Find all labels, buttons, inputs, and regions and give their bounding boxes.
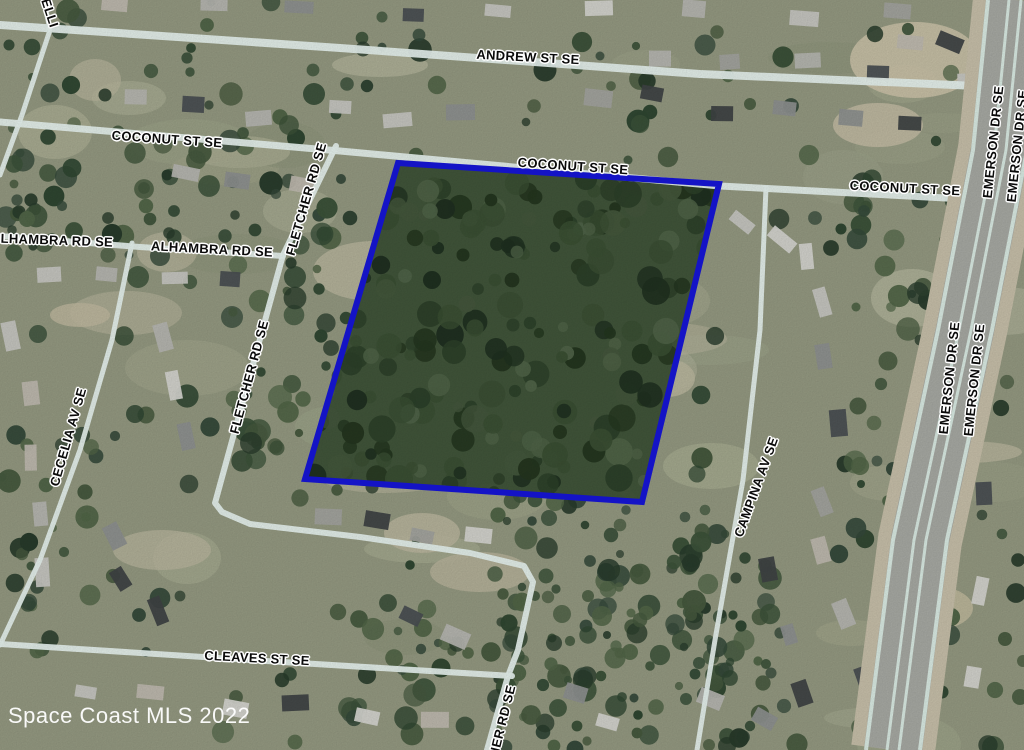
aerial-map: ANDREW ST SECOCONUT ST SECOCONUT ST SECO…: [0, 0, 1024, 750]
mls-watermark: Space Coast MLS 2022: [8, 703, 250, 729]
satellite-imagery: [0, 0, 1024, 750]
photo-grain-overlay: [0, 0, 1024, 750]
